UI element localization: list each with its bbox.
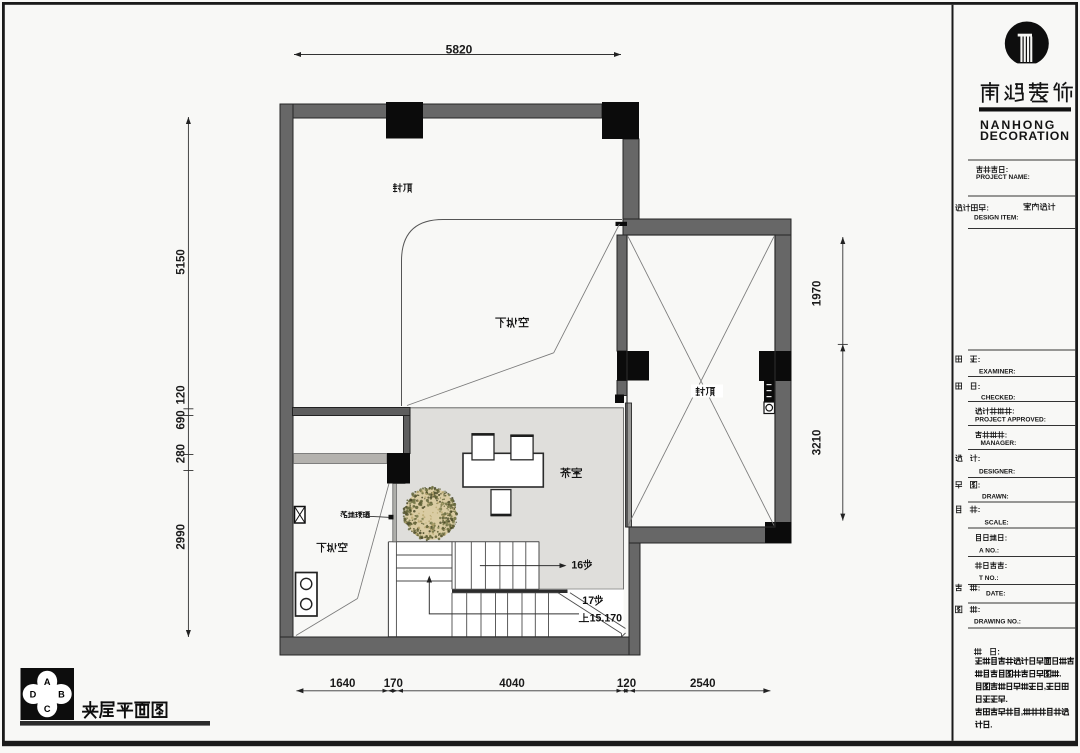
svg-text:,: ,	[1021, 708, 1023, 717]
svg-text:A: A	[44, 677, 51, 687]
svg-text:D: D	[30, 690, 37, 700]
svg-text:280: 280	[176, 444, 188, 463]
svg-text:.: .	[1006, 695, 1008, 704]
svg-text::: :	[1005, 561, 1007, 570]
svg-text:PROJECT NAME:: PROJECT NAME:	[976, 174, 1030, 181]
svg-text::: :	[1005, 430, 1007, 439]
svg-text:16: 16	[571, 560, 583, 572]
svg-text::: :	[978, 355, 981, 364]
svg-text:DRAWN:: DRAWN:	[982, 494, 1009, 501]
svg-text:690: 690	[176, 410, 188, 429]
svg-text::: :	[1006, 165, 1008, 174]
svg-text:DECORATION: DECORATION	[980, 129, 1070, 143]
svg-text:2540: 2540	[690, 678, 716, 690]
svg-text:2990: 2990	[176, 524, 188, 550]
svg-text::: :	[997, 647, 1000, 656]
svg-text:17: 17	[582, 595, 594, 607]
svg-text:DESIGN ITEM:: DESIGN ITEM:	[974, 215, 1018, 222]
svg-text::: :	[978, 505, 981, 514]
svg-text:SCALE:: SCALE:	[985, 520, 1009, 527]
svg-text:5150: 5150	[176, 249, 188, 275]
svg-text:MANAGER:: MANAGER:	[981, 440, 1017, 447]
svg-text::: :	[978, 382, 981, 391]
svg-text:.: .	[1059, 670, 1061, 679]
svg-text:120: 120	[617, 678, 636, 690]
svg-text:A NO.:: A NO.:	[979, 548, 999, 555]
svg-text:C: C	[44, 704, 51, 714]
svg-text::: :	[1005, 533, 1007, 542]
svg-text::: :	[978, 454, 981, 463]
svg-text:T NO.:: T NO.:	[979, 575, 999, 582]
svg-text:DRAWING NO.:: DRAWING NO.:	[974, 619, 1021, 626]
svg-text:1640: 1640	[330, 678, 356, 690]
svg-text:170: 170	[384, 678, 403, 690]
svg-text:CHECKED:: CHECKED:	[981, 394, 1015, 401]
svg-text::: :	[978, 584, 981, 593]
svg-text:.: .	[990, 720, 992, 729]
svg-text:1970: 1970	[811, 281, 823, 307]
svg-text:4040: 4040	[499, 678, 525, 690]
svg-text:PROJECT APPROVED:: PROJECT APPROVED:	[975, 417, 1046, 424]
svg-text:3210: 3210	[811, 430, 823, 456]
svg-text::: :	[986, 204, 989, 213]
svg-text:5820: 5820	[446, 43, 473, 57]
svg-text::: :	[1012, 407, 1014, 416]
svg-text:B: B	[58, 690, 65, 700]
svg-text:,: ,	[1044, 682, 1046, 691]
svg-text:EXAMINER:: EXAMINER:	[979, 369, 1015, 376]
svg-text:15.170: 15.170	[590, 613, 623, 625]
svg-text::: :	[978, 605, 981, 614]
svg-text:DESIGNER:: DESIGNER:	[979, 469, 1015, 476]
svg-text::: :	[978, 481, 981, 490]
svg-text:DATE:: DATE:	[986, 591, 1005, 598]
svg-text:120: 120	[176, 385, 188, 404]
